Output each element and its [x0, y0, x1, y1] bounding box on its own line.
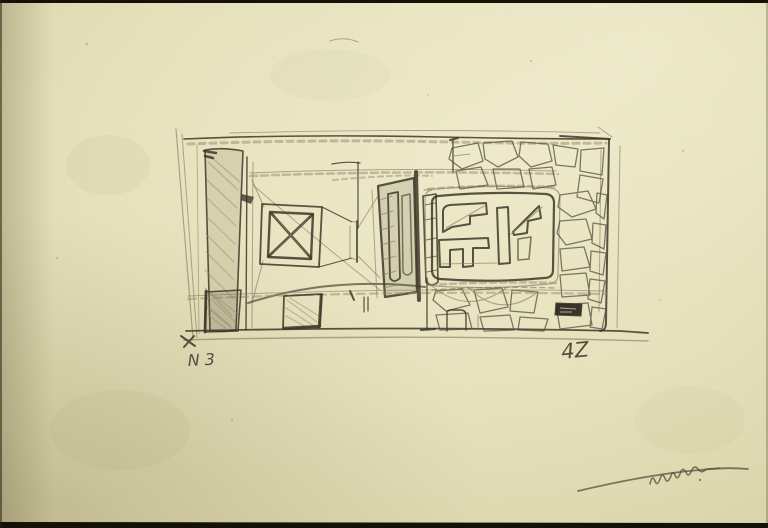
label-block: [555, 303, 582, 316]
annotation-bottom-right: 4Z: [560, 337, 591, 364]
annotation-bottom-left: N 3: [187, 350, 215, 370]
scanned-drawing: N 3 4Z: [0, 0, 768, 528]
